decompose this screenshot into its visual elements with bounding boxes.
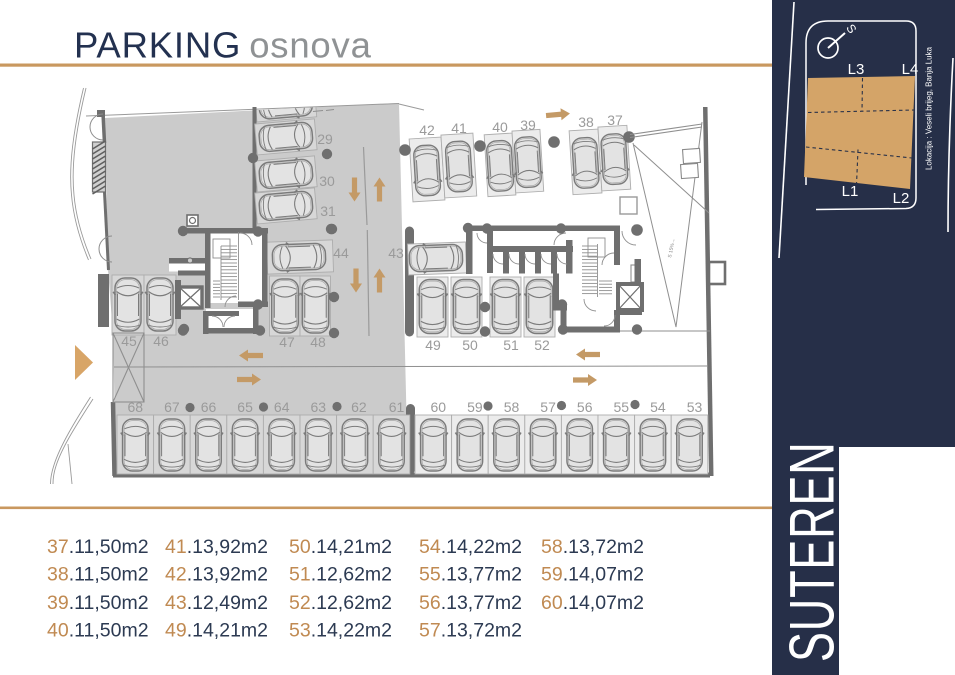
svg-text:53: 53 [687,399,703,415]
svg-text:57: 57 [540,399,556,415]
svg-text:65: 65 [237,399,253,415]
svg-text:60.14,07m2: 60.14,07m2 [541,592,644,614]
svg-text:L2: L2 [893,190,910,207]
svg-text:41.13,92m2: 41.13,92m2 [165,536,268,558]
svg-text:45: 45 [121,333,137,349]
svg-text:47: 47 [279,334,295,350]
svg-text:61: 61 [389,399,405,415]
svg-text:55: 55 [614,399,630,415]
svg-text:49: 49 [425,337,441,353]
svg-text:59: 59 [467,399,483,415]
svg-text:38.11,50m2: 38.11,50m2 [47,564,149,586]
svg-text:56: 56 [577,399,593,415]
svg-text:38: 38 [578,114,594,130]
svg-text:30: 30 [319,173,335,189]
svg-text:42: 42 [419,122,435,138]
svg-text:49.14,21m2: 49.14,21m2 [165,620,268,642]
svg-text:52.12,62m2: 52.12,62m2 [289,592,392,614]
svg-text:40.11,50m2: 40.11,50m2 [47,620,149,642]
svg-text:54.14,22m2: 54.14,22m2 [419,536,522,558]
svg-text:66: 66 [201,399,217,415]
svg-text:S 15%→: S 15%→ [667,238,677,259]
svg-text:68: 68 [128,399,144,415]
svg-text:58: 58 [504,399,520,415]
svg-text:43: 43 [388,245,404,261]
svg-text:56.13,77m2: 56.13,77m2 [419,592,522,614]
svg-text:39.11,50m2: 39.11,50m2 [47,592,149,614]
svg-text:55.13,77m2: 55.13,77m2 [419,564,522,586]
svg-text:L1: L1 [842,183,859,200]
svg-text:52: 52 [534,337,550,353]
svg-text:57.13,72m2: 57.13,72m2 [419,620,522,642]
svg-text:41: 41 [451,120,467,136]
svg-text:Lokacija : Veseli brijeg, Banj: Lokacija : Veseli brijeg, Banja Luka [925,47,934,170]
svg-text:51: 51 [503,337,519,353]
svg-text:43.12,49m2: 43.12,49m2 [165,592,268,614]
svg-text:58.13,72m2: 58.13,72m2 [541,536,644,558]
svg-text:50: 50 [462,337,478,353]
svg-text:50.14,21m2: 50.14,21m2 [289,536,392,558]
svg-text:SUTEREN: SUTEREN [776,441,847,662]
svg-text:48: 48 [310,334,326,350]
svg-text:54: 54 [650,399,666,415]
svg-text:63: 63 [311,399,327,415]
svg-text:L3: L3 [848,61,865,78]
svg-text:44: 44 [333,245,349,261]
svg-text:39: 39 [520,117,536,133]
svg-text:29: 29 [317,131,333,147]
svg-text:60: 60 [431,399,447,415]
svg-text:31: 31 [320,203,336,219]
svg-text:53.14,22m2: 53.14,22m2 [289,620,392,642]
svg-text:PARKINGosnova: PARKINGosnova [74,25,372,66]
svg-text:37.11,50m2: 37.11,50m2 [47,536,149,558]
svg-text:67: 67 [164,399,180,415]
svg-text:62: 62 [351,399,367,415]
svg-text:59.14,07m2: 59.14,07m2 [541,564,644,586]
svg-text:L4: L4 [902,61,919,78]
svg-text:37: 37 [607,112,623,128]
svg-text:40: 40 [492,119,508,135]
svg-text:46: 46 [153,333,169,349]
svg-text:42.13,92m2: 42.13,92m2 [165,564,268,586]
svg-text:64: 64 [274,399,290,415]
svg-text:51.12,62m2: 51.12,62m2 [289,564,392,586]
